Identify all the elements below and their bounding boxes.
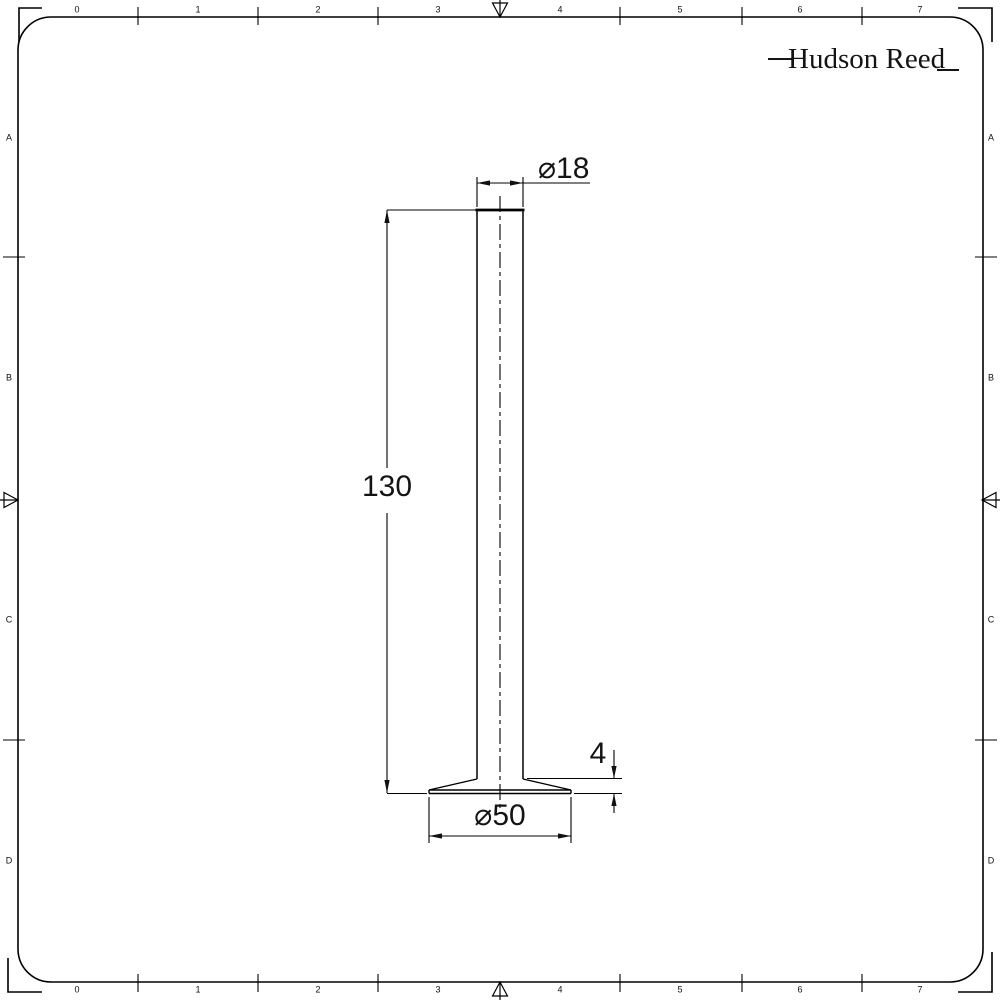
- technical-drawing: [0, 0, 1000, 1000]
- ruler-label: 0: [74, 986, 79, 995]
- ruler-label: 4: [557, 6, 562, 15]
- center-arrow-top-icon: [493, 0, 508, 17]
- ruler-label: B: [988, 374, 994, 383]
- center-arrow-left-icon: [0, 493, 18, 508]
- logo-text: Hudson Reed: [788, 43, 945, 75]
- ruler-label: C: [6, 616, 13, 625]
- arrowhead-down-icon: [611, 766, 616, 779]
- drawing-sheet: 0 1 2 3 4 5 6 7 0 1 2 3 4 5 6 7 A B C D …: [0, 0, 1000, 1000]
- ruler-label: 3: [435, 6, 440, 15]
- brand-logo: Hudson Reed: [768, 42, 959, 76]
- trim-mark-bottom-right: [958, 952, 992, 992]
- base-cone-right: [523, 779, 571, 790]
- ruler-label: 7: [917, 986, 922, 995]
- ruler-label: D: [988, 857, 995, 866]
- arrowhead-right-icon: [558, 833, 571, 838]
- logo-right-dash: [937, 69, 959, 71]
- dimension-label-top-diameter: ⌀18: [538, 154, 602, 184]
- center-arrow-right-icon: [982, 493, 1000, 508]
- ruler-label: 6: [797, 986, 802, 995]
- ruler-label: 5: [677, 986, 682, 995]
- arrowhead-up-icon: [611, 794, 616, 807]
- arrowhead-left-icon: [477, 180, 490, 185]
- base-cone-left: [429, 779, 477, 790]
- ruler-label: 2: [315, 6, 320, 15]
- arrowhead-left-icon: [429, 833, 442, 838]
- ruler-label: D: [6, 857, 13, 866]
- ruler-label: 0: [74, 6, 79, 15]
- arrowhead-right-icon: [510, 180, 523, 185]
- dimension-label-base-thickness: 4: [585, 739, 611, 769]
- ruler-label: 6: [797, 6, 802, 15]
- ruler-label: A: [6, 134, 12, 143]
- dimension-label-base-diameter: ⌀50: [458, 801, 542, 831]
- ruler-label: 1: [195, 986, 200, 995]
- ruler-label: A: [988, 134, 994, 143]
- trim-mark-top-right: [958, 8, 992, 42]
- ruler-label: 5: [677, 6, 682, 15]
- ruler-label: 4: [557, 986, 562, 995]
- trim-mark-bottom-left: [8, 958, 42, 992]
- ruler-label: 7: [917, 6, 922, 15]
- arrowhead-up-icon: [384, 210, 389, 223]
- ruler-label: 2: [315, 986, 320, 995]
- dimension-label-height: 130: [355, 472, 419, 502]
- ruler-label: C: [988, 616, 995, 625]
- ruler-label: 3: [435, 986, 440, 995]
- ruler-label: 1: [195, 6, 200, 15]
- center-arrow-bottom-icon: [493, 982, 508, 1000]
- ruler-label: B: [6, 374, 12, 383]
- arrowhead-down-icon: [384, 780, 389, 793]
